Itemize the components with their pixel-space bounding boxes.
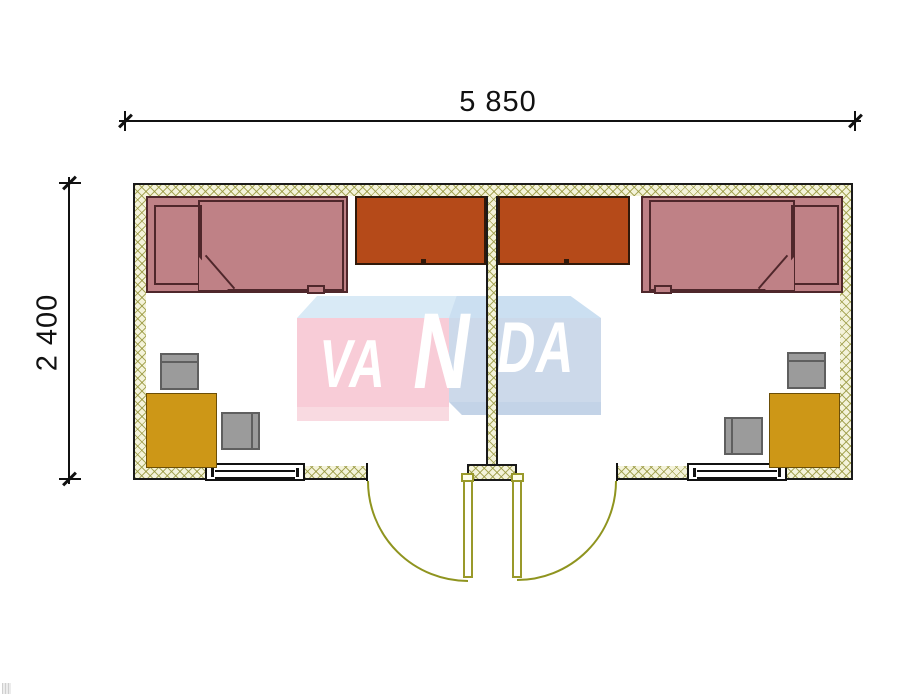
chair-left-top-backrest [162, 361, 197, 363]
bed-right-pillow [791, 205, 839, 285]
door-right-swing-arc [517, 481, 616, 580]
chair-right-side [724, 417, 763, 455]
bed-left-blanket [198, 200, 344, 291]
bed-left [146, 196, 348, 293]
chair-right-side-backrest [731, 419, 733, 453]
chair-right-top [787, 352, 826, 389]
fine-print-mark [2, 683, 11, 694]
wardrobe-right [498, 196, 630, 265]
desk-left [146, 393, 217, 468]
bed-left-pillow [154, 205, 202, 285]
bed-left-foot-tab [307, 285, 325, 294]
floor-plan-canvas: 5 850 2 400 VA N DA [0, 0, 924, 700]
door-swing-arcs [0, 0, 924, 700]
chair-right-top-backrest [789, 360, 824, 362]
wardrobe-left [355, 196, 486, 265]
chair-left-top [160, 353, 199, 390]
bed-right-foot-tab [654, 285, 672, 294]
desk-right [769, 393, 840, 468]
door-left-swing-arc [368, 481, 468, 581]
wardrobe-left-handle [421, 259, 426, 264]
bed-right [641, 196, 843, 293]
chair-left-side-backrest [251, 414, 253, 448]
chair-left-side [221, 412, 260, 450]
wardrobe-right-handle [564, 259, 569, 264]
bed-right-blanket [649, 200, 795, 291]
